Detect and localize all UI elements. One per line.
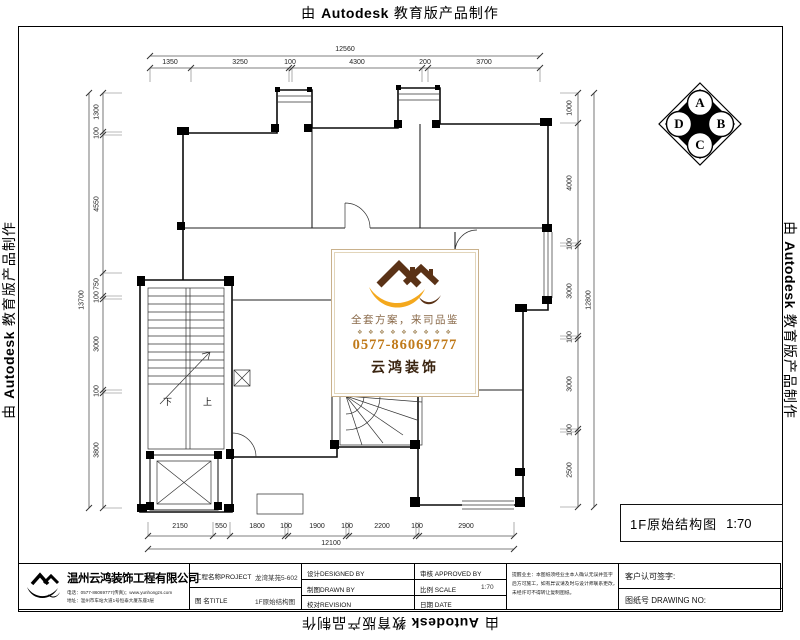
- dim-label: 3000: [567, 376, 574, 392]
- company-address-line: 地址：温州市车站大道1号恒泰大厦东座3层: [67, 597, 154, 604]
- diamond-letter-c: C: [695, 137, 704, 153]
- diamond-letter-b: B: [717, 116, 726, 132]
- title-block: 温州云鸿装饰工程有限公司 电话：0577-86069777(传真)；www.yu…: [18, 563, 781, 610]
- dim-label: 100: [280, 523, 292, 530]
- owner-note-line: 后方可施工，如有异议请及时与设计师联系更改，: [512, 580, 618, 587]
- dim-label: 1900: [309, 523, 325, 530]
- stair-up-label: 上: [203, 395, 212, 408]
- dim-label: 4000: [567, 175, 574, 191]
- dim-label: 100: [341, 523, 353, 530]
- dim-label: 3000: [567, 283, 574, 299]
- diamond-letter-a: A: [695, 95, 704, 111]
- ornament-divider: ❖ ❖ ❖ ❖ ❖ ❖ ❖ ❖ ❖: [357, 329, 453, 336]
- dim-label: 1350: [162, 59, 178, 66]
- watermark-slogan: 全套方案，来司品鉴: [351, 312, 459, 327]
- dim-label: 2500: [567, 462, 574, 478]
- scale-value: 1:70: [481, 584, 494, 591]
- dim-label: 1800: [249, 523, 265, 530]
- dim-total-label: 13700: [79, 290, 86, 309]
- revision-label: 校对REVISION: [307, 599, 351, 609]
- title-value: 1F原始结构图: [255, 596, 295, 606]
- dim-label: 100: [284, 59, 296, 66]
- tb-divider: [301, 564, 302, 609]
- company-name: 温州云鸿装饰工程有限公司: [67, 570, 199, 586]
- designed-by-label: 设计DESIGNED BY: [307, 568, 364, 578]
- dim-label: 100: [94, 291, 101, 303]
- drawing-name: 1F原始结构图: [630, 514, 717, 533]
- date-label: 日期 DATE: [420, 599, 452, 609]
- tb-divider: [414, 564, 415, 609]
- dim-label: 4550: [94, 196, 101, 212]
- drawing-name-box: 1F原始结构图 1:70: [620, 504, 783, 542]
- dim-label: 2900: [458, 523, 474, 530]
- dim-label: 750: [94, 278, 101, 290]
- drawing-scale: 1:70: [726, 516, 751, 531]
- owner-note-line: 未经许可不得转让复制图纸。: [512, 589, 574, 596]
- tb-divider: [506, 564, 507, 609]
- dim-label: 100: [567, 424, 574, 436]
- tb-rowline: [189, 587, 301, 588]
- watermark-card: 全套方案，来司品鉴 ❖ ❖ ❖ ❖ ❖ ❖ ❖ ❖ ❖ 0577-8606977…: [331, 249, 479, 397]
- project-label: 工程名称PROJECT: [195, 571, 251, 581]
- approved-by-label: 审核 APPROVED BY: [420, 568, 481, 578]
- dim-label: 100: [411, 523, 423, 530]
- tb-rowline: [414, 579, 506, 580]
- dim-total-label: 12800: [586, 290, 593, 309]
- dim-label: 3000: [94, 336, 101, 352]
- company-logo: [24, 570, 64, 604]
- dim-label: 100: [94, 127, 101, 139]
- drawn-by-label: 制图DRAWN BY: [307, 584, 355, 594]
- diamond-letter-d: D: [674, 116, 683, 132]
- dim-label: 100: [567, 331, 574, 343]
- dim-label: 3700: [476, 59, 492, 66]
- cad-sheet: 由Autodesk教育版产品制作 由Autodesk教育版产品制作 由Autod…: [0, 0, 800, 640]
- dim-label: 2150: [172, 523, 188, 530]
- dim-label: 4300: [349, 59, 365, 66]
- dim-label: 3250: [232, 59, 248, 66]
- stair-down-label: 下: [163, 395, 172, 408]
- tb-rowline: [414, 595, 506, 596]
- orientation-diamond: [656, 80, 744, 168]
- watermark-phone: 0577-86069777: [353, 337, 458, 354]
- dim-label: 1000: [567, 100, 574, 116]
- owner-note-line: 提醒业主：本图纸须经业主本人确认无误并签字: [512, 571, 613, 578]
- yunhong-logo: [363, 255, 447, 311]
- dim-label: 100: [94, 385, 101, 397]
- dim-total-label: 12560: [335, 46, 354, 53]
- dim-total-label: 12100: [321, 540, 340, 547]
- drawing-no-label: 图纸号 DRAWING NO:: [625, 595, 706, 606]
- watermark-brand: 云鸿装饰: [371, 357, 439, 377]
- tb-rowline: [618, 588, 782, 589]
- title-label: 图 名TITLE: [195, 595, 228, 605]
- customer-sign-label: 客户认可签字:: [625, 571, 675, 582]
- scale-label: 比例 SCALE: [420, 584, 456, 594]
- dim-label: 1300: [94, 104, 101, 120]
- company-phone-line: 电话：0577-86069777(传真)；www.yunhongzs.com: [67, 589, 172, 596]
- dim-label: 200: [419, 59, 431, 66]
- dim-label: 100: [567, 238, 574, 250]
- project-value: 龙湾某苑5-602: [255, 572, 298, 582]
- tb-rowline: [301, 579, 414, 580]
- dim-label: 2200: [374, 523, 390, 530]
- dim-label: 3800: [94, 442, 101, 458]
- tb-divider: [618, 564, 619, 609]
- tb-rowline: [301, 595, 414, 596]
- dim-label: 550: [215, 523, 227, 530]
